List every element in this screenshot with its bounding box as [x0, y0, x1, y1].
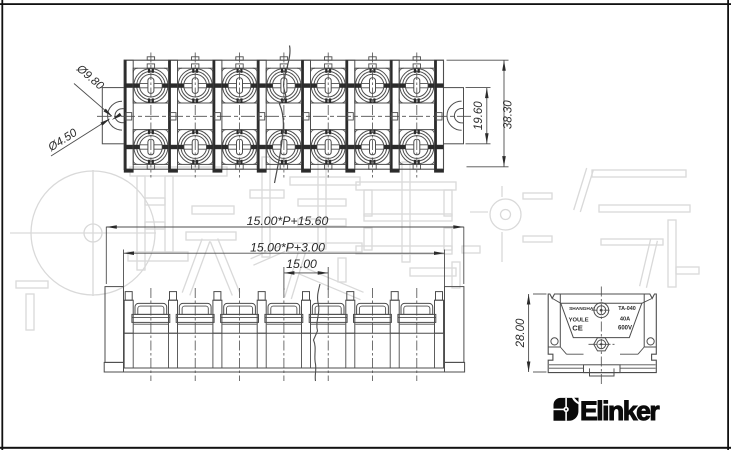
- svg-text:15.00*P+15.60: 15.00*P+15.60: [247, 214, 329, 228]
- svg-text:CE: CE: [572, 323, 583, 332]
- svg-text:40A: 40A: [620, 316, 630, 322]
- svg-text:19.60: 19.60: [473, 101, 485, 130]
- svg-text:Elinker: Elinker: [580, 396, 659, 426]
- svg-text:600V: 600V: [618, 325, 632, 331]
- svg-text:SHANGHAI: SHANGHAI: [569, 306, 595, 312]
- svg-text:38.30: 38.30: [503, 100, 515, 129]
- svg-text:TA-040: TA-040: [618, 306, 636, 312]
- svg-text:15.00*P+3.00: 15.00*P+3.00: [250, 240, 325, 254]
- svg-text:15.00: 15.00: [286, 257, 317, 271]
- svg-text:28.00: 28.00: [515, 318, 527, 348]
